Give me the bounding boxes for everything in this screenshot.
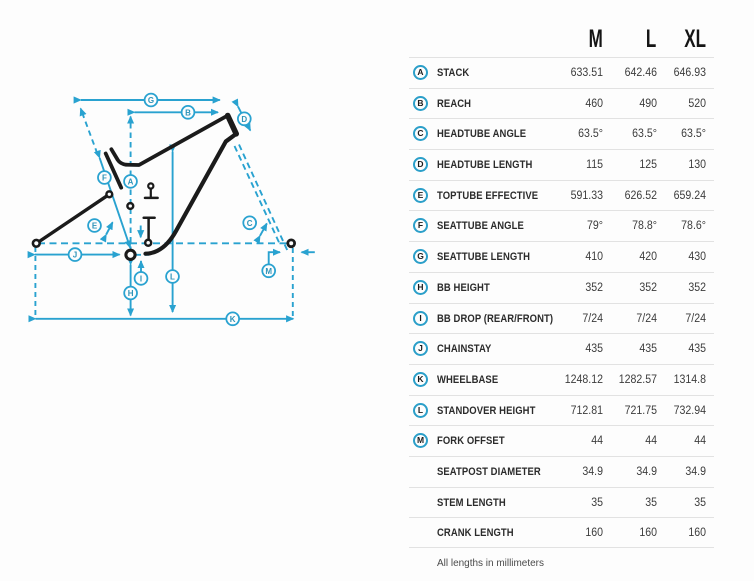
svg-text:H: H [128,289,134,298]
svg-text:B: B [185,108,191,117]
svg-text:I: I [140,274,142,283]
svg-text:E: E [92,222,98,231]
svg-text:G: G [148,96,154,105]
svg-text:J: J [73,251,77,260]
svg-text:A: A [128,177,134,186]
svg-text:C: C [247,219,253,228]
svg-text:L: L [170,273,175,282]
svg-text:D: D [241,115,247,124]
svg-text:F: F [102,174,107,183]
svg-text:K: K [230,315,236,324]
svg-text:M: M [265,267,272,276]
